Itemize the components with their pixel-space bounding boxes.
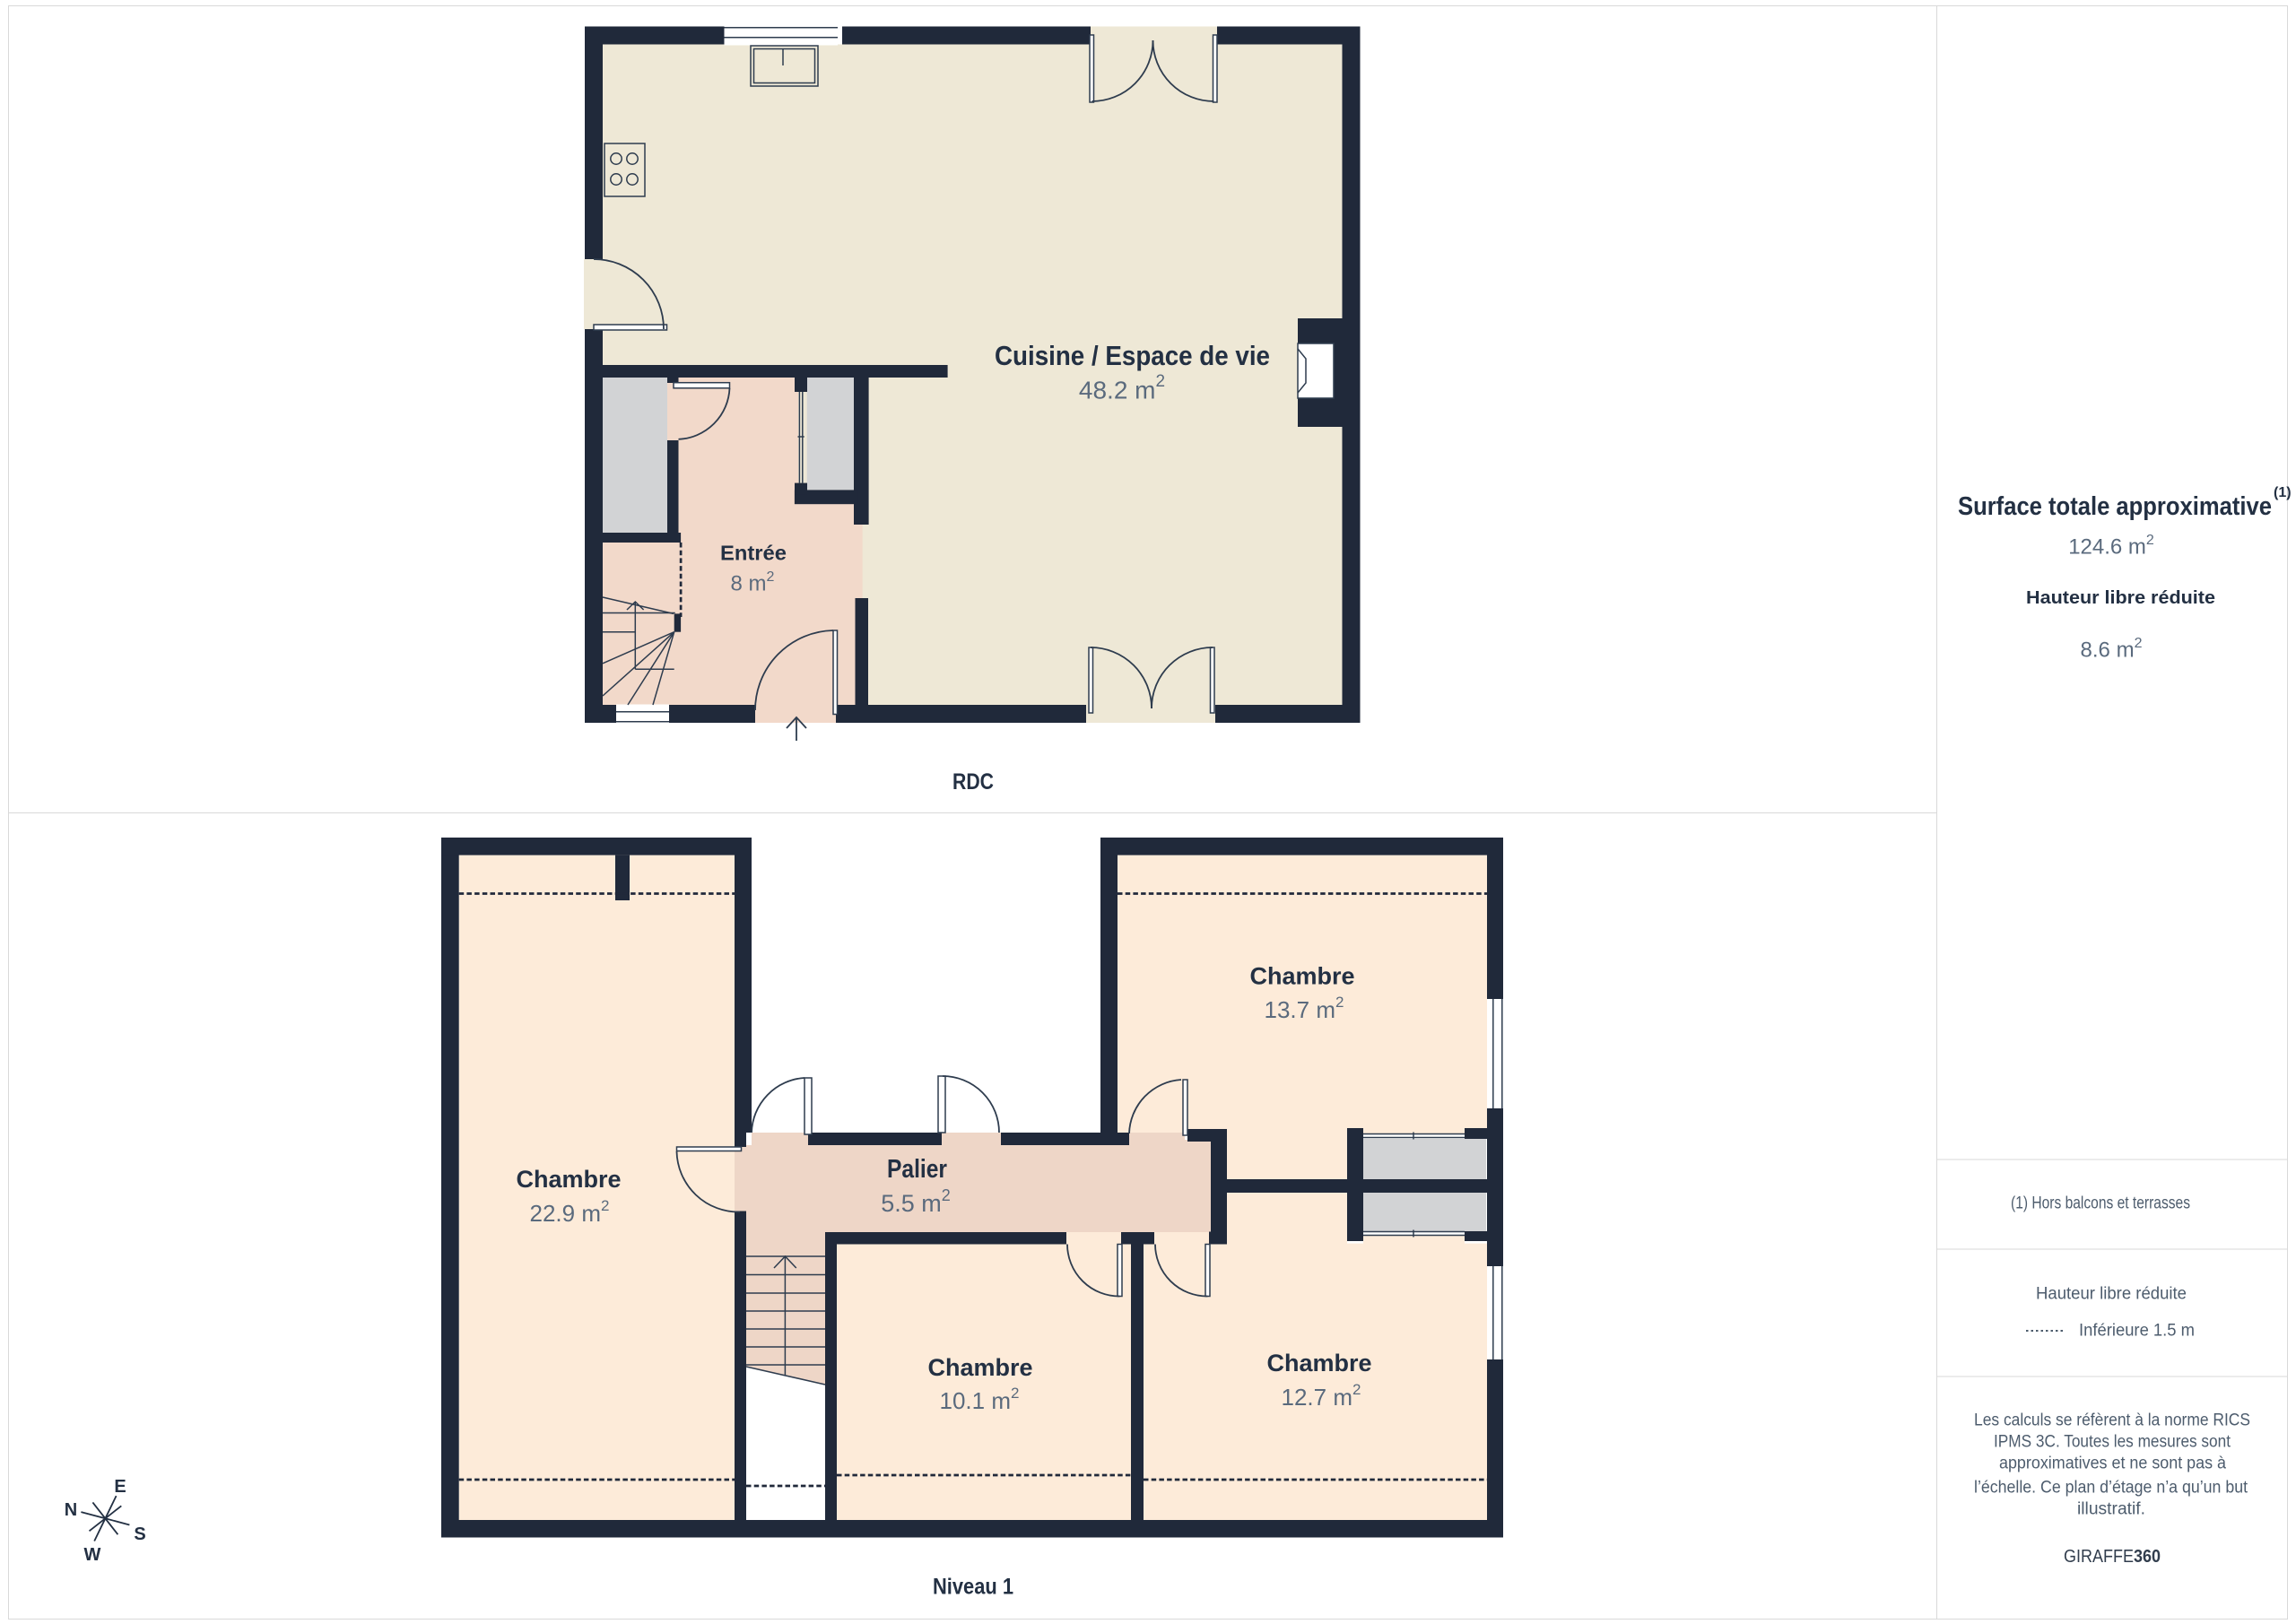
svg-text:Entrée: Entrée	[720, 542, 787, 565]
svg-text:RDC: RDC	[952, 769, 994, 795]
svg-text:12.7 m2: 12.7 m2	[1282, 1381, 1361, 1411]
svg-text:(1): (1)	[2274, 485, 2292, 500]
svg-text:Hauteur libre réduite: Hauteur libre réduite	[2036, 1285, 2187, 1304]
svg-text:Les calculs se réfèrent à la n: Les calculs se réfèrent à la norme RICS	[1974, 1411, 2250, 1430]
svg-text:S: S	[134, 1524, 145, 1544]
svg-text:Niveau 1: Niveau 1	[933, 1574, 1013, 1599]
svg-text:8.6 m2: 8.6 m2	[2081, 636, 2143, 663]
svg-text:Chambre: Chambre	[927, 1354, 1032, 1381]
svg-text:approximatives et ne sont pas: approximatives et ne sont pas à	[1999, 1455, 2226, 1473]
svg-text:22.9 m2: 22.9 m2	[530, 1197, 610, 1228]
svg-text:Inférieure 1.5 m: Inférieure 1.5 m	[2079, 1322, 2195, 1341]
svg-text:illustratif.: illustratif.	[2077, 1500, 2145, 1519]
svg-text:W: W	[84, 1545, 101, 1565]
svg-text:124.6 m2: 124.6 m2	[2068, 533, 2154, 560]
svg-text:Palier: Palier	[887, 1155, 947, 1184]
svg-text:IPMS 3C. Toutes les mesures so: IPMS 3C. Toutes les mesures sont	[1994, 1433, 2231, 1452]
svg-text:Hauteur libre réduite: Hauteur libre réduite	[2026, 588, 2215, 608]
svg-text:l’échelle. Ce plan d’étage n’a: l’échelle. Ce plan d’étage n’a qu’un but	[1974, 1479, 2248, 1498]
svg-text:Chambre: Chambre	[1249, 963, 1354, 990]
svg-text:(1) Hors balcons et terrasses: (1) Hors balcons et terrasses	[2011, 1194, 2190, 1213]
svg-text:48.2 m2: 48.2 m2	[1079, 372, 1165, 404]
svg-text:Chambre: Chambre	[516, 1166, 621, 1193]
svg-text:N: N	[65, 1500, 77, 1520]
svg-text:13.7 m2: 13.7 m2	[1265, 994, 1344, 1024]
svg-text:Surface totale approximative: Surface totale approximative	[1958, 492, 2272, 521]
svg-text:10.1 m2: 10.1 m2	[940, 1385, 1020, 1415]
svg-text:E: E	[114, 1477, 126, 1497]
svg-text:GIRAFFE360: GIRAFFE360	[2064, 1547, 2161, 1567]
svg-text:5.5 m2: 5.5 m2	[881, 1186, 951, 1217]
svg-text:Cuisine / Espace de vie: Cuisine / Espace de vie	[995, 340, 1270, 371]
svg-text:Chambre: Chambre	[1266, 1350, 1371, 1376]
